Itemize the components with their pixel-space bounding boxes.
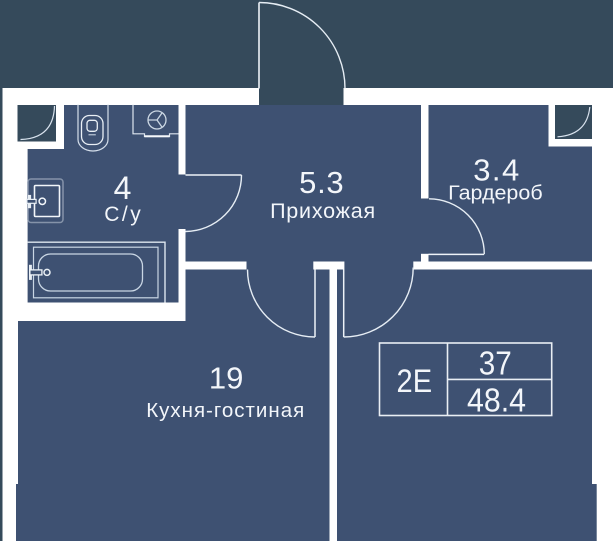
- svg-text:19: 19: [209, 361, 243, 396]
- svg-text:4: 4: [114, 170, 132, 206]
- svg-text:48.4: 48.4: [467, 382, 526, 419]
- svg-text:Кухня-гостиная: Кухня-гостиная: [146, 399, 304, 422]
- svg-text:2Е: 2Е: [397, 363, 433, 399]
- svg-text:5.3: 5.3: [299, 165, 344, 200]
- svg-text:С/у: С/у: [104, 203, 141, 226]
- svg-text:Прихожая: Прихожая: [270, 199, 375, 223]
- svg-text:Гардероб: Гардероб: [448, 183, 543, 205]
- svg-text:37: 37: [479, 345, 512, 382]
